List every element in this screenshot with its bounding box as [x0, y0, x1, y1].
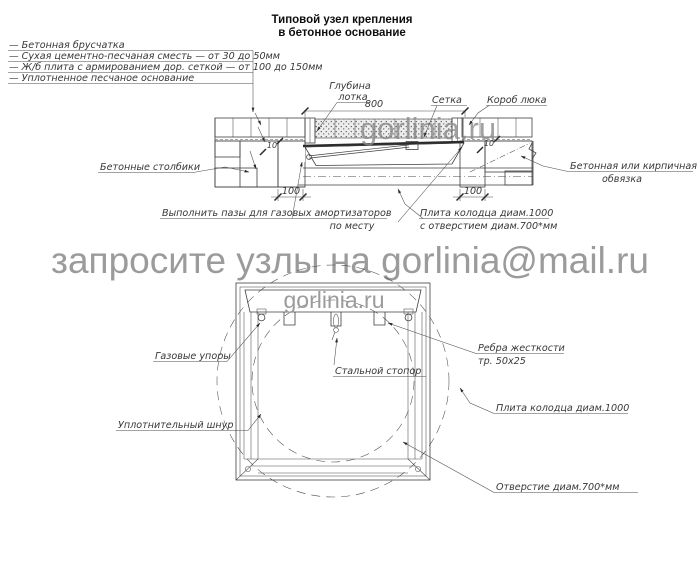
legend-item-4: — Уплотненное песчаное основание: [9, 73, 194, 84]
label-mesh-text: Сетка: [432, 95, 462, 106]
label-posts-text: Бетонные столбики: [100, 161, 200, 173]
label-edging-line1: Бетонная или кирпичная: [570, 161, 697, 172]
legend-item-1: — Бетонная брусчатка: [9, 39, 125, 51]
legend-item-2: — Сухая цементно-песчаная сместь — от 30…: [9, 51, 280, 62]
label-gas-stops-text: Газовые упоры: [155, 351, 231, 362]
watermark-plan: gorlinia.ru: [284, 287, 385, 313]
label-grooves-line1: Выполнить пазы для газовых амортизаторов: [162, 208, 392, 219]
label-cord-text: Уплотнительный шнур: [118, 420, 233, 431]
label-plate-plan-text: Плита колодца диам.1000: [496, 403, 629, 414]
legend-item-3: — Ж/б плита с армированием дор. сеткой —…: [9, 61, 323, 73]
cad-drawing: Типовой узел крепления в бетонное основа…: [0, 0, 700, 568]
title-block: Типовой узел крепления в бетонное основа…: [272, 14, 413, 39]
watermark-banner: запросите узлы на gorlinia@mail.ru: [51, 240, 649, 281]
label-hatch-box-text: Короб люка: [487, 94, 547, 106]
label-ribs-line2: тр. 50х25: [478, 356, 526, 367]
label-edging-line2: обвязка: [602, 173, 642, 185]
dim-10-left-value: 10: [267, 141, 277, 150]
drawing-sheet: Типовой узел крепления в бетонное основа…: [0, 0, 700, 568]
label-depth-line1: Глубина: [329, 80, 371, 92]
label-grooves-line2: по месту: [330, 221, 375, 232]
title-line2: в бетонное основание: [278, 27, 406, 39]
dim-100-right-value: 100: [464, 186, 482, 197]
label-plate-line1: Плита колодца диам.1000: [420, 208, 553, 219]
label-opening-text: Отверстие диам.700*мм: [496, 482, 619, 493]
label-stopper-text: Стальной стопор: [335, 366, 421, 377]
title-line1: Типовой узел крепления: [272, 14, 413, 26]
label-plate-line2: с отверстием диам.700*мм: [420, 221, 557, 232]
label-ribs-line1: Ребра жесткости: [478, 342, 565, 354]
label-depth-line2: лотка: [337, 92, 367, 103]
